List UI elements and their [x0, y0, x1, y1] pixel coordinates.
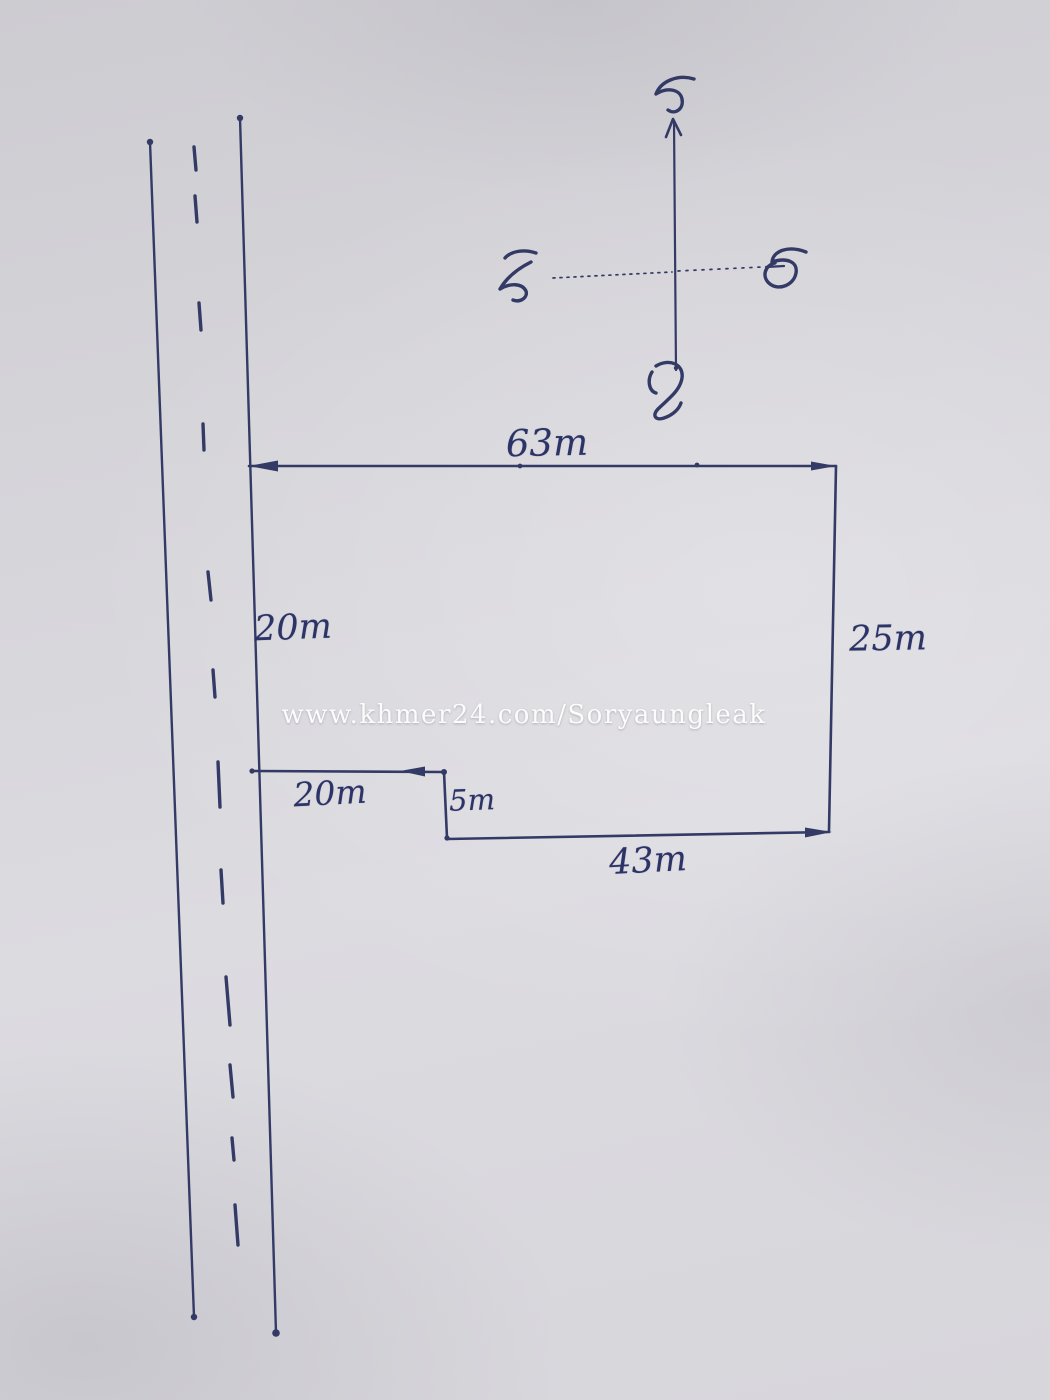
road-left-edge-end-dot: [191, 1314, 197, 1320]
road: [147, 115, 280, 1337]
dimension-top-side: 63m: [506, 421, 589, 465]
parcel-step-bottom-dot: [444, 835, 449, 840]
paper-sheet: 63m 20m 25m 20m 5m 43m www.khmer24.com/S…: [0, 0, 1050, 1400]
compass-horizontal-axis-west: [553, 272, 672, 278]
parcel-top-tick-dot-2: [695, 463, 700, 468]
dimension-left-side: 20m: [253, 607, 332, 650]
parcel-bottom-side-line: [447, 832, 829, 839]
compass-rose: [500, 77, 806, 418]
parcel-step-arrowhead: [400, 767, 425, 777]
road-right-edge-line: [240, 118, 276, 1333]
dimension-step-width: 20m: [292, 772, 367, 815]
road-right-edge-end-dot: [272, 1329, 280, 1337]
parcel-right-side-line: [829, 466, 836, 831]
road-left-edge-start-dot: [147, 139, 153, 145]
road-left-edge-line: [150, 142, 194, 1317]
compass-vertical-axis: [674, 122, 676, 370]
compass-west-label-khmer: [500, 251, 536, 301]
watermark: www.khmer24.com/Soryaungleak: [281, 700, 766, 730]
compass-south-label-khmer: [649, 362, 682, 418]
compass-east-label-khmer: [765, 249, 806, 287]
parcel-step-vertical-line: [444, 772, 447, 838]
dimension-bottom-side: 43m: [608, 839, 688, 883]
compass-north-label-khmer: [656, 77, 694, 111]
dimension-step-height: 5m: [448, 782, 495, 818]
parcel-step-left-dot: [249, 768, 254, 773]
parcel-top-right-arrowhead: [811, 462, 836, 471]
road-right-edge-start-dot: [237, 115, 243, 121]
dimension-right-side: 25m: [849, 618, 927, 659]
road-centerline-dashes: [194, 147, 238, 1245]
parcel-top-left-arrowhead: [249, 461, 278, 472]
